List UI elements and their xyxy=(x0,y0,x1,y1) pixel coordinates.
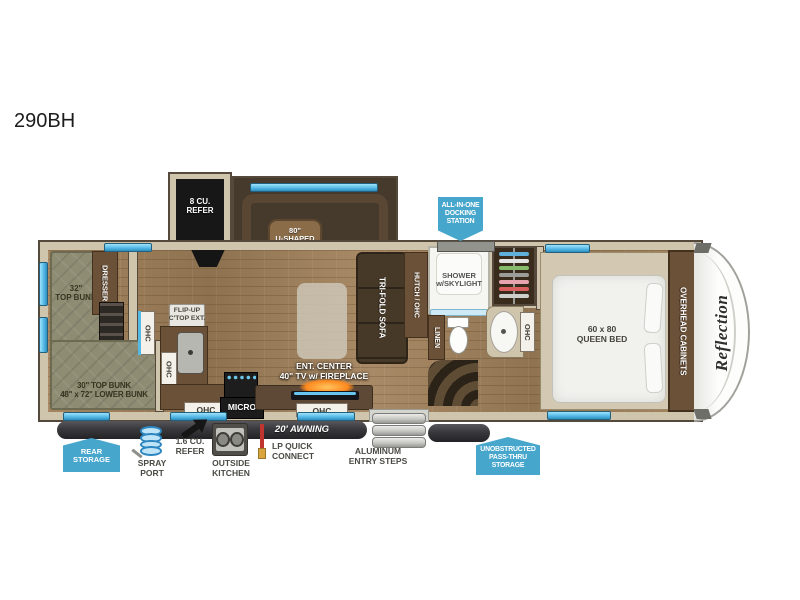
docking-station-badge: ALL-IN-ONE DOCKING STATION xyxy=(438,197,483,241)
window xyxy=(547,411,611,420)
lp-connector xyxy=(258,448,266,459)
step xyxy=(372,425,426,436)
brand-logo: Reflection xyxy=(712,253,734,413)
pass-thru-badge: UNOBSTRUCTED PASS-THRU STORAGE xyxy=(476,437,540,475)
bunk-room-wall xyxy=(128,251,138,343)
coil xyxy=(140,446,162,456)
burner xyxy=(216,432,230,447)
hanger-icon xyxy=(499,287,529,291)
entry-steps-label: ALUMINUM ENTRY STEPS xyxy=(338,447,418,466)
floorplan-page: 290BH 8 CU. REFER 80" U-SHAPED DINETTE 3… xyxy=(0,0,800,600)
tv-screen xyxy=(294,392,356,395)
floor-rug xyxy=(297,283,347,359)
linen-label: LINEN xyxy=(428,315,445,360)
window xyxy=(39,262,48,306)
dinette-window xyxy=(250,183,378,192)
flip-up-counter-label: FLIP-UP C'TOP EXT. xyxy=(168,307,206,322)
hanger-icon xyxy=(499,259,529,263)
step xyxy=(372,413,426,424)
window xyxy=(545,244,590,253)
hanger-icon xyxy=(499,266,529,270)
model-title: 290BH xyxy=(14,110,75,133)
spray-port-label: SPRAY PORT xyxy=(126,459,178,478)
ohc-bunk-wall-label: OHC xyxy=(141,311,155,355)
queen-bed-label: 60 x 80 QUEEN BED xyxy=(552,325,652,344)
hanger-icon xyxy=(499,294,529,298)
awning-label: 20' AWNING xyxy=(262,425,342,436)
cap-marker-bottom xyxy=(693,409,711,419)
bedroom-steps xyxy=(428,360,478,406)
ohc-kitchen-label: OHC xyxy=(161,352,177,386)
spray-port-icon xyxy=(140,426,162,456)
sofa-label: TRI-FOLD SOFA xyxy=(356,252,408,364)
toilet-bowl xyxy=(449,326,468,354)
clothes-hangers xyxy=(499,249,529,303)
grill-burners xyxy=(216,428,244,451)
window xyxy=(39,317,48,353)
window xyxy=(297,412,355,421)
hutch-label: HUTCH / OHC xyxy=(404,252,428,338)
bath-sink-drain xyxy=(501,329,506,334)
lp-connect-icon xyxy=(260,424,264,450)
bunk-ladder xyxy=(99,302,124,342)
hanger-icon xyxy=(499,280,529,284)
burner xyxy=(230,432,244,447)
docking-station-panel xyxy=(437,241,495,252)
bunk-combo-label: 30" TOP BUNK 48" x 72" LOWER BUNK xyxy=(40,381,168,399)
rear-storage-badge: REAR STORAGE xyxy=(63,438,120,472)
outside-kitchen-label: OUTSIDE KITCHEN xyxy=(206,459,256,478)
outside-refer-label: 1.6 CU. REFER xyxy=(168,437,212,456)
shower-label: SHOWER w/SKYLIGHT xyxy=(427,272,491,289)
window xyxy=(63,412,110,421)
pass-thru-bar xyxy=(428,424,490,442)
pillow xyxy=(644,343,664,394)
refrigerator-label: 8 CU. REFER xyxy=(176,197,224,215)
entry-steps xyxy=(372,412,426,446)
ohc-bath-label: OHC xyxy=(520,312,535,352)
window xyxy=(104,243,152,252)
hanger-icon xyxy=(499,252,529,256)
stove-burner-knobs xyxy=(226,374,256,381)
sink-faucet xyxy=(188,350,193,355)
lp-connect-label: LP QUICK CONNECT xyxy=(272,442,324,461)
hanger-icon xyxy=(499,273,529,277)
